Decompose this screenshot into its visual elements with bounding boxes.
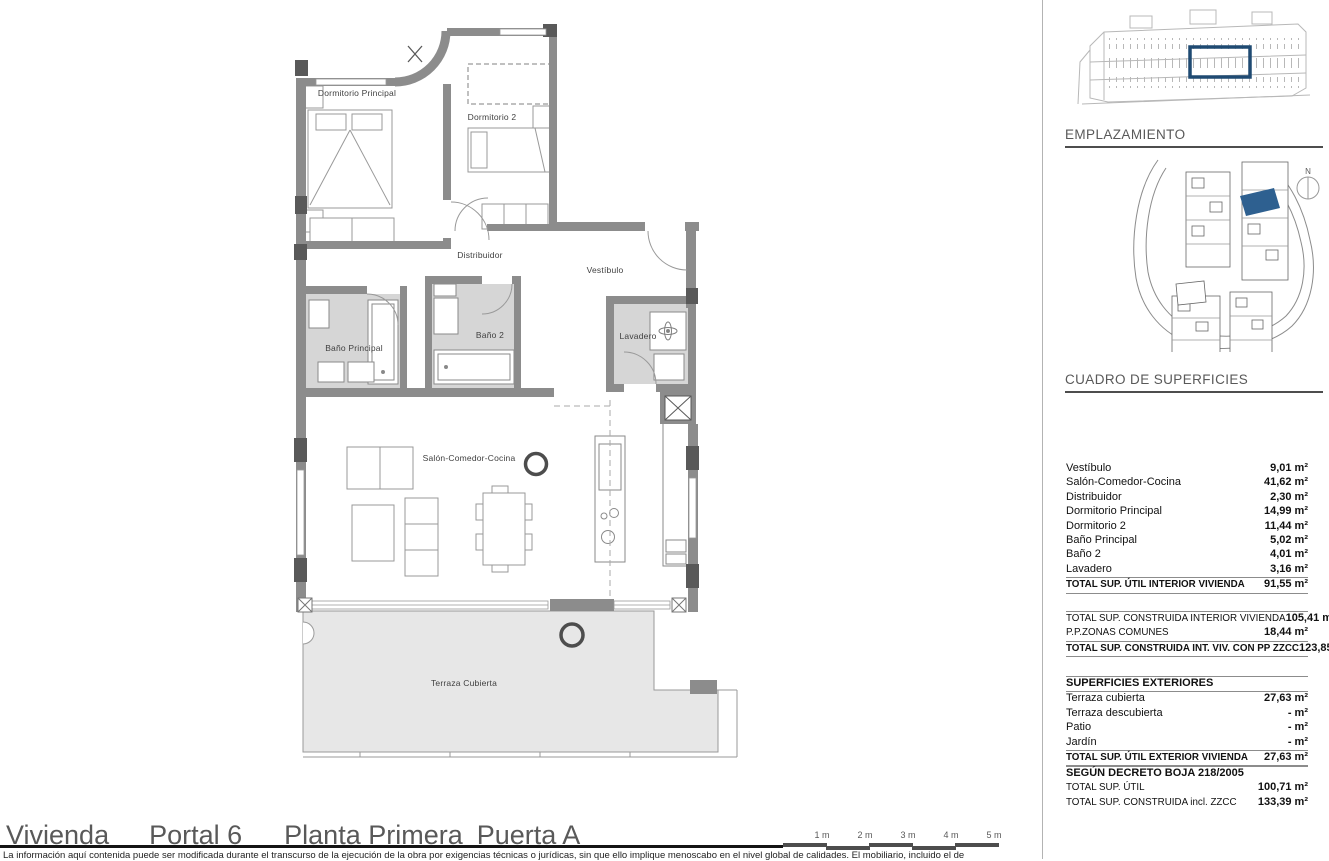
- scale-segment: [826, 846, 870, 850]
- optional-bed-outline: [468, 64, 552, 104]
- floor-plan: Dormitorio Principal Dormitorio 2 Distri…: [0, 0, 1042, 820]
- table-row: Distribuidor2,30 m²: [1066, 491, 1308, 505]
- row-label: Terraza descubierta: [1066, 707, 1163, 719]
- heading-cuadro-de-superficies: CUADRO DE SUPERFICIES: [1065, 372, 1323, 393]
- row-label: TOTAL SUP. ÚTIL INTERIOR VIVIENDA: [1066, 579, 1245, 590]
- room-label-salon: Salón-Comedor-Cocina: [423, 453, 516, 463]
- scale-segment: [783, 843, 827, 847]
- row-label: TOTAL SUP. ÚTIL EXTERIOR VIVIENDA: [1066, 752, 1248, 763]
- row-value: - m²: [1288, 721, 1308, 733]
- dining-table: [476, 486, 532, 572]
- row-label: Dormitorio Principal: [1066, 505, 1162, 517]
- row-label: TOTAL SUP. CONSTRUIDA INT. VIV. CON PP Z…: [1066, 643, 1299, 654]
- row-label: Baño Principal: [1066, 534, 1137, 546]
- row-label: Terraza cubierta: [1066, 692, 1145, 704]
- table-row: TOTAL SUP. CONSTRUIDA INTERIOR VIVIENDA1…: [1066, 611, 1308, 626]
- scale-segment: [912, 846, 956, 850]
- table-row: Vestíbulo9,01 m²: [1066, 462, 1308, 476]
- row-label: Baño 2: [1066, 548, 1101, 560]
- row-value: 4,01 m²: [1270, 548, 1308, 560]
- toilet: [434, 284, 456, 296]
- north-label: N: [1305, 167, 1311, 176]
- table-row: Terraza cubierta27,63 m²: [1066, 692, 1308, 706]
- room-label-distribuidor: Distribuidor: [457, 250, 502, 260]
- table-row: Dormitorio 211,44 m²: [1066, 520, 1308, 534]
- row-value: - m²: [1288, 707, 1308, 719]
- surface-table-exteriores: SUPERFICIES EXTERIORES Terraza cubierta2…: [1066, 676, 1308, 766]
- table-row: Dormitorio Principal14,99 m²: [1066, 505, 1308, 519]
- row-value: 3,16 m²: [1270, 563, 1308, 575]
- row-label: TOTAL SUP. ÚTIL: [1066, 782, 1145, 793]
- terrace-pillar: [690, 680, 717, 694]
- surface-table-decreto: SEGÚN DECRETO BOJA 218/2005 TOTAL SUP. Ú…: [1066, 766, 1308, 810]
- room-label-dormitorio-principal: Dormitorio Principal: [318, 88, 396, 98]
- surface-table-interior: Vestíbulo9,01 m² Salón-Comedor-Cocina41,…: [1066, 462, 1308, 594]
- row-value: 27,63 m²: [1264, 751, 1308, 763]
- row-value: 100,71 m²: [1258, 781, 1308, 793]
- elevation-outline: [1078, 10, 1310, 104]
- scale-label: 5 m: [986, 830, 1001, 840]
- scale-label: 4 m: [943, 830, 958, 840]
- scale-label: 2 m: [857, 830, 872, 840]
- ceiling-light-icon: [526, 454, 547, 475]
- building-elevation: [1072, 4, 1324, 116]
- north-compass-icon: N: [1297, 167, 1319, 199]
- room-label-vestibulo: Vestíbulo: [587, 265, 624, 275]
- table-total-row: TOTAL SUP. CONSTRUIDA INT. VIV. CON PP Z…: [1066, 641, 1308, 657]
- terrace-area: [303, 611, 737, 757]
- toilet: [309, 300, 329, 328]
- site-map: N: [1090, 152, 1329, 352]
- table-row: Lavadero3,16 m²: [1066, 563, 1308, 577]
- row-label: Jardín: [1066, 736, 1097, 748]
- room-label-terraza: Terraza Cubierta: [431, 678, 497, 688]
- room-label-lavadero: Lavadero: [619, 331, 656, 341]
- window-band: [1106, 58, 1302, 69]
- surface-table-construida: TOTAL SUP. CONSTRUIDA INTERIOR VIVIENDA1…: [1066, 611, 1308, 657]
- scale-label: 3 m: [900, 830, 915, 840]
- row-label: Vestíbulo: [1066, 462, 1111, 474]
- row-value: 2,30 m²: [1270, 491, 1308, 503]
- table-total-row: TOTAL SUP. ÚTIL EXTERIOR VIVIENDA27,63 m…: [1066, 750, 1308, 766]
- table-row: Salón-Comedor-Cocina41,62 m²: [1066, 476, 1308, 490]
- row-value: 27,63 m²: [1264, 692, 1308, 704]
- row-value: 133,39 m²: [1258, 796, 1308, 808]
- row-label: Lavadero: [1066, 563, 1112, 575]
- scale-bar: 1 m 2 m 3 m 4 m 5 m: [783, 830, 1009, 852]
- table-row: TOTAL SUP. ÚTIL100,71 m²: [1066, 781, 1308, 795]
- table-row: P.P.ZONAS COMUNES18,44 m²: [1066, 626, 1308, 640]
- kitchen-counter: [663, 418, 689, 566]
- row-value: 18,44 m²: [1264, 626, 1308, 638]
- section-heading: SEGÚN DECRETO BOJA 218/2005: [1066, 767, 1244, 779]
- row-label: Salón-Comedor-Cocina: [1066, 476, 1181, 488]
- sink: [348, 362, 374, 382]
- row-value: 105,41 m²: [1286, 612, 1329, 624]
- row-label: TOTAL SUP. CONSTRUIDA INTERIOR VIVIENDA: [1066, 613, 1286, 624]
- row-label: Patio: [1066, 721, 1091, 733]
- scale-label: 1 m: [814, 830, 829, 840]
- sidebar: EMPLAZAMIENTO N CUAD: [1042, 0, 1329, 859]
- table-row: Patio- m²: [1066, 721, 1308, 735]
- room-label-dormitorio-2: Dormitorio 2: [468, 112, 517, 122]
- row-label: TOTAL SUP. CONSTRUIDA incl. ZZCC: [1066, 797, 1237, 808]
- row-value: 123,85 m²: [1299, 642, 1329, 654]
- table-row: Baño Principal5,02 m²: [1066, 534, 1308, 548]
- curved-wall: [395, 31, 446, 82]
- sink: [434, 298, 458, 334]
- table-row: Jardín- m²: [1066, 736, 1308, 750]
- sink: [318, 362, 344, 382]
- row-value: - m²: [1288, 736, 1308, 748]
- row-value: 91,55 m²: [1264, 578, 1308, 590]
- row-value: 14,99 m²: [1264, 505, 1308, 517]
- row-value: 41,62 m²: [1264, 476, 1308, 488]
- section-heading: SUPERFICIES EXTERIORES: [1066, 677, 1213, 689]
- ventilation-shaft: [660, 392, 696, 424]
- row-value: 11,44 m²: [1265, 520, 1308, 532]
- row-label: P.P.ZONAS COMUNES: [1066, 627, 1169, 638]
- scale-segment: [955, 843, 999, 847]
- row-value: 9,01 m²: [1270, 462, 1308, 474]
- row-label: Distribuidor: [1066, 491, 1122, 503]
- table-row: Terraza descubierta- m²: [1066, 707, 1308, 721]
- table-row: Baño 24,01 m²: [1066, 548, 1308, 562]
- room-label-bano-2: Baño 2: [476, 330, 504, 340]
- heading-emplazamiento: EMPLAZAMIENTO: [1065, 127, 1323, 148]
- curved-window-mark: [408, 46, 422, 62]
- section-heading-row: SEGÚN DECRETO BOJA 218/2005: [1066, 766, 1308, 781]
- floor-plan-sheet: { "plan": { "room_labels": { "dormitorio…: [0, 0, 1329, 859]
- title-underline: [0, 845, 783, 848]
- room-label-bano-principal: Baño Principal: [325, 343, 383, 353]
- section-heading-row: SUPERFICIES EXTERIORES: [1066, 676, 1308, 692]
- table-row: TOTAL SUP. CONSTRUIDA incl. ZZCC133,39 m…: [1066, 796, 1308, 810]
- scale-segment: [869, 843, 913, 847]
- row-label: Dormitorio 2: [1066, 520, 1126, 532]
- row-value: 5,02 m²: [1270, 534, 1308, 546]
- table-total-row: TOTAL SUP. ÚTIL INTERIOR VIVIENDA91,55 m…: [1066, 577, 1308, 593]
- floor-plan-drawing: [0, 0, 1042, 820]
